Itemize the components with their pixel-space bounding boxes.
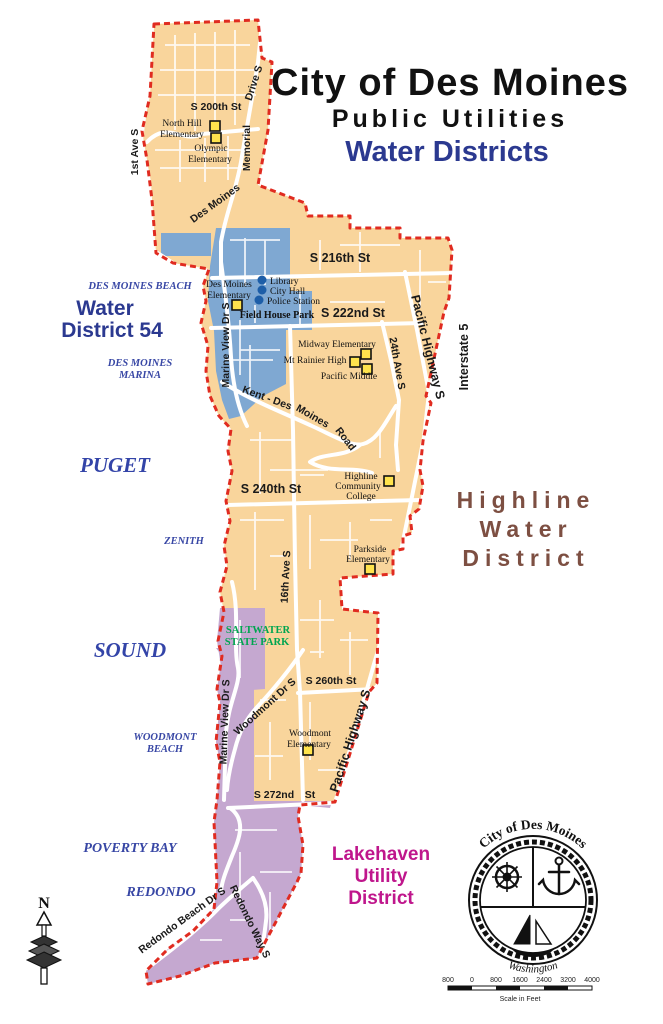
scale-tick: 4000 bbox=[584, 977, 600, 984]
label-marina-1: DES MOINES bbox=[107, 358, 173, 369]
poi-marker-city-hall bbox=[258, 286, 267, 295]
label-north-hill-2: Elementary bbox=[160, 130, 204, 140]
label-poverty-bay: POVERTY BAY bbox=[83, 841, 178, 856]
label-marina-2: MARINA bbox=[118, 370, 161, 381]
label-sound: SOUND bbox=[94, 638, 166, 662]
label-mt-rainier-high: Mt Rainier High bbox=[284, 356, 347, 366]
scale-caption: Scale in Feet bbox=[500, 996, 541, 1003]
label-s-272nd: S 272nd bbox=[254, 789, 294, 801]
label-police-station: Police Station bbox=[267, 297, 320, 307]
page-subtitle: Public Utilities bbox=[332, 105, 568, 133]
label-1st-ave-s: 1st Ave S bbox=[129, 129, 141, 176]
school-marker bbox=[361, 349, 371, 359]
school-marker bbox=[384, 476, 394, 486]
label-woodmont-beach-2: BEACH bbox=[146, 744, 184, 755]
label-field-house-park: Field House Park bbox=[240, 310, 315, 321]
label-olympic-2: Elementary bbox=[188, 155, 232, 165]
label-s-222nd: S 222nd St bbox=[321, 306, 386, 320]
label-s-240th: S 240th St bbox=[241, 482, 302, 496]
page-title: City of Des Moines bbox=[271, 62, 629, 104]
label-interstate-5: Interstate 5 bbox=[457, 324, 471, 391]
school-marker bbox=[350, 357, 360, 367]
label-highline-2: Water bbox=[479, 516, 572, 542]
label-wd54-1: Water bbox=[76, 297, 134, 320]
label-dm-elem-2: Elementary bbox=[207, 291, 251, 301]
label-woodmont-beach-1: WOODMONT bbox=[134, 732, 198, 743]
label-hcc-3: College bbox=[346, 492, 376, 502]
school-marker bbox=[232, 300, 242, 310]
north-label: N bbox=[38, 895, 50, 912]
label-memorial: Memorial bbox=[241, 125, 253, 171]
label-parkside-2: Elementary bbox=[346, 555, 390, 565]
label-wd54-2: District 54 bbox=[61, 319, 163, 342]
city-seal: City of Des Moines Washington bbox=[463, 817, 603, 976]
scale-tick: 3200 bbox=[560, 977, 576, 984]
label-s-272nd-st: St bbox=[305, 789, 316, 801]
label-north-hill-1: North Hill bbox=[162, 119, 202, 129]
label-puget: PUGET bbox=[79, 453, 151, 477]
map-page: City of Des Moines Public Utilities Wate… bbox=[0, 0, 663, 1024]
label-s-216th: S 216th St bbox=[310, 251, 371, 265]
label-library: Library bbox=[270, 277, 299, 287]
water-labels: PUGET SOUND DES MOINES BEACH DES MOINES … bbox=[79, 281, 205, 900]
label-pacific-middle: Pacific Middle bbox=[321, 371, 377, 382]
scale-tick: 1600 bbox=[512, 977, 528, 984]
school-marker bbox=[210, 121, 220, 131]
label-saltwater-2: STATE PARK bbox=[225, 637, 290, 648]
label-dm-elem-1: Des Moines bbox=[206, 280, 252, 290]
poi-marker-police bbox=[255, 296, 264, 305]
label-lakehaven-3: District bbox=[348, 888, 414, 909]
label-city-hall: City Hall bbox=[270, 287, 305, 297]
water-districts-map: City of Des Moines Public Utilities Wate… bbox=[0, 0, 663, 1024]
label-saltwater-1: SALTWATER bbox=[226, 625, 291, 636]
scale-tick: 800 bbox=[442, 977, 454, 984]
label-lakehaven-2: Utility bbox=[355, 866, 408, 887]
label-hcc-1: Highline bbox=[344, 472, 377, 482]
label-zenith: ZENITH bbox=[163, 536, 205, 547]
scale-tick: 0 bbox=[470, 977, 474, 984]
school-marker bbox=[211, 133, 221, 143]
page-subtitle-2: Water Districts bbox=[345, 136, 549, 168]
label-lakehaven-1: Lakehaven bbox=[332, 844, 430, 865]
scale-tick: 2400 bbox=[536, 977, 552, 984]
label-midway-elem: Midway Elementary bbox=[298, 340, 376, 350]
label-des-moines-beach: DES MOINES BEACH bbox=[87, 281, 192, 292]
scale-tick: 800 bbox=[490, 977, 502, 984]
label-s-200th: S 200th St bbox=[191, 101, 242, 113]
north-arrow: N bbox=[27, 895, 61, 984]
school-marker bbox=[365, 564, 375, 574]
label-parkside-1: Parkside bbox=[354, 545, 387, 555]
label-olympic-1: Olympic bbox=[194, 144, 227, 154]
scale-bar: 800 0 800 1600 2400 3200 4000 Scale in F… bbox=[442, 977, 600, 1003]
park-label: SALTWATER STATE PARK bbox=[225, 625, 291, 648]
label-marine-view-n: Marine View Dr S bbox=[220, 302, 232, 387]
label-woodmont-1: Woodmont bbox=[289, 729, 331, 739]
label-highline-3: District bbox=[462, 545, 589, 571]
label-woodmont-2: Elementary bbox=[287, 740, 331, 750]
label-redondo: REDONDO bbox=[125, 885, 195, 900]
poi-marker-library bbox=[258, 276, 267, 285]
label-highline-1: Highline bbox=[457, 487, 596, 513]
label-s-260th: S 260th St bbox=[306, 675, 357, 687]
label-hcc-2: Community bbox=[335, 482, 381, 492]
title-block: City of Des Moines Public Utilities Wate… bbox=[271, 62, 629, 168]
north-arrowhead bbox=[37, 912, 51, 925]
seal-wheel-icon bbox=[492, 862, 522, 892]
